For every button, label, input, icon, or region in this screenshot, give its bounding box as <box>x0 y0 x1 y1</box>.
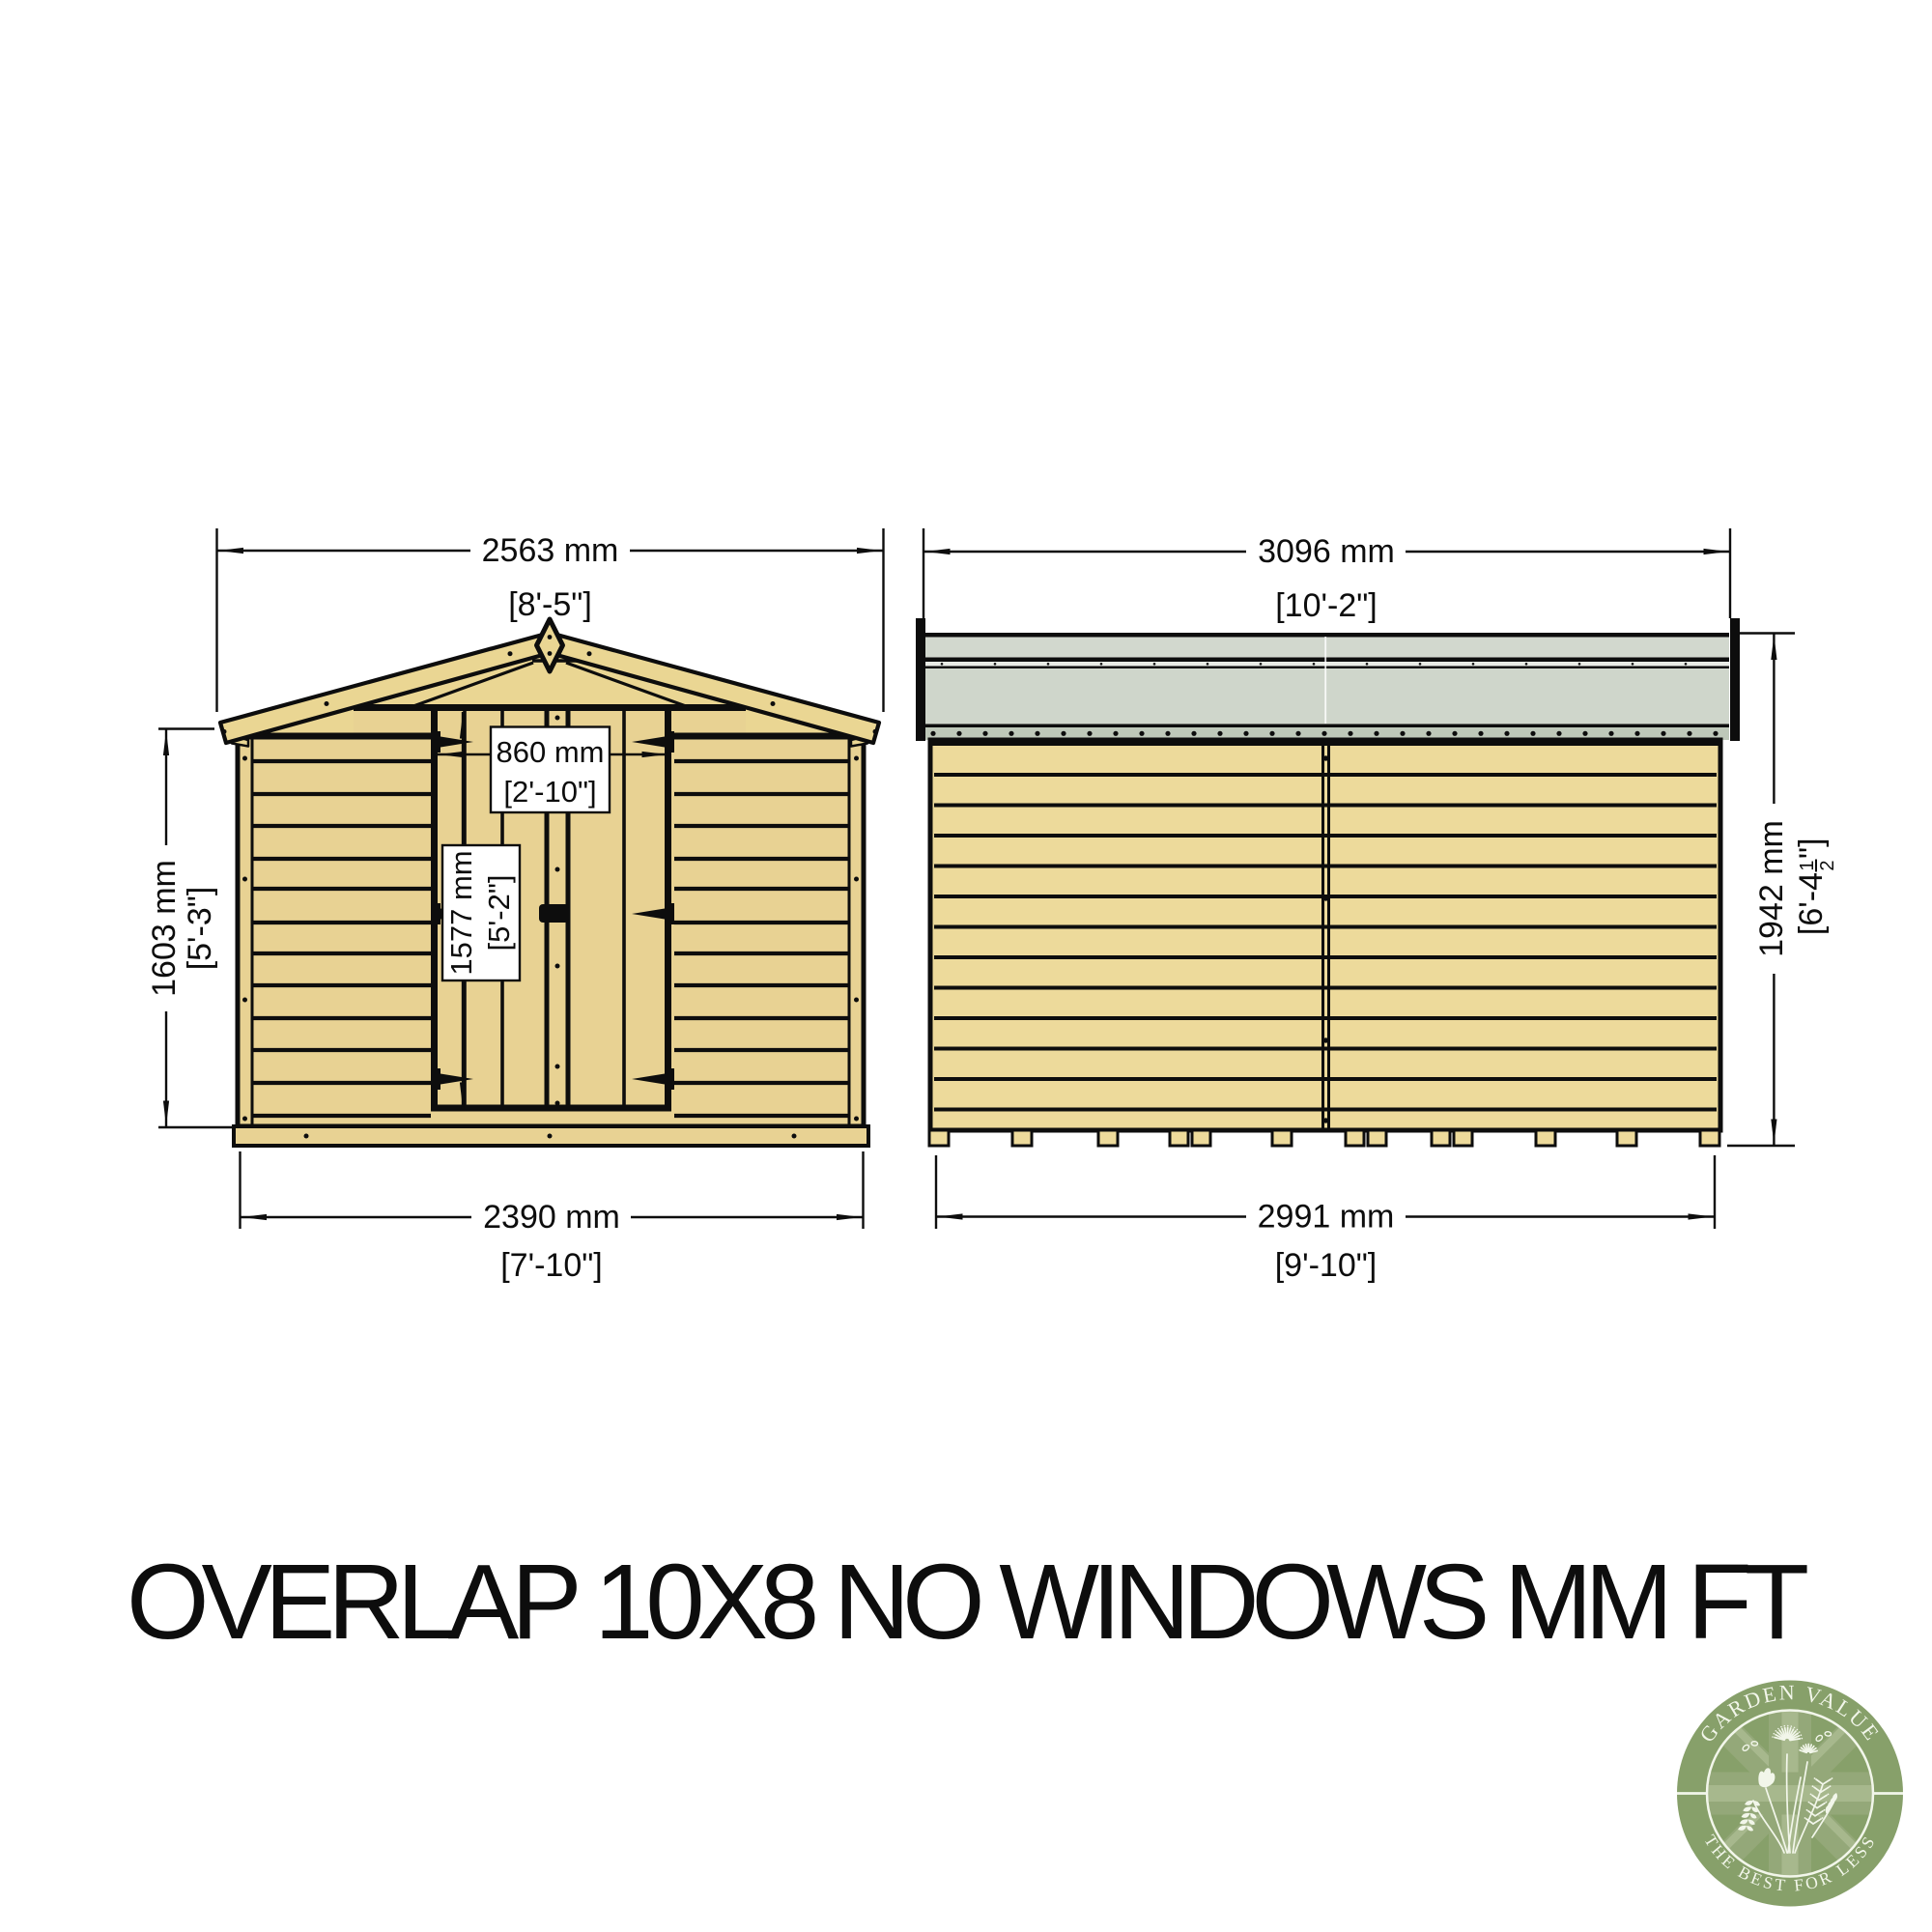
svg-text:[2'-10"]: [2'-10"] <box>503 775 596 809</box>
svg-text:2390 mm: 2390 mm <box>483 1199 620 1236</box>
svg-text:860 mm: 860 mm <box>497 735 605 769</box>
svg-text:[8'-5"]: [8'-5"] <box>508 586 592 623</box>
svg-text:1603 mm: 1603 mm <box>146 860 183 997</box>
svg-text:[7'-10"]: [7'-10"] <box>500 1247 603 1284</box>
svg-text:1: 1 <box>1797 860 1818 870</box>
svg-text:[10'-2"]: [10'-2"] <box>1275 587 1378 624</box>
svg-text:[5'-2"]: [5'-2"] <box>482 875 516 952</box>
svg-text:[9'-10"]: [9'-10"] <box>1275 1247 1378 1284</box>
svg-text:2563 mm: 2563 mm <box>482 532 619 569</box>
svg-text:[5'-3"]: [5'-3"] <box>182 887 218 971</box>
svg-text:1942 mm: 1942 mm <box>1753 820 1790 957</box>
svg-text:1577 mm: 1577 mm <box>444 850 478 975</box>
svg-text:[6'-4: [6'-4 <box>1793 872 1830 935</box>
svg-text:3096 mm: 3096 mm <box>1258 533 1395 570</box>
svg-text:"]: "] <box>1793 838 1830 859</box>
svg-text:OVERLAP 10X8 NO WINDOWS MM FT: OVERLAP 10X8 NO WINDOWS MM FT <box>127 1543 1807 1662</box>
svg-text:2991 mm: 2991 mm <box>1258 1199 1395 1236</box>
svg-text:2: 2 <box>1817 860 1838 870</box>
